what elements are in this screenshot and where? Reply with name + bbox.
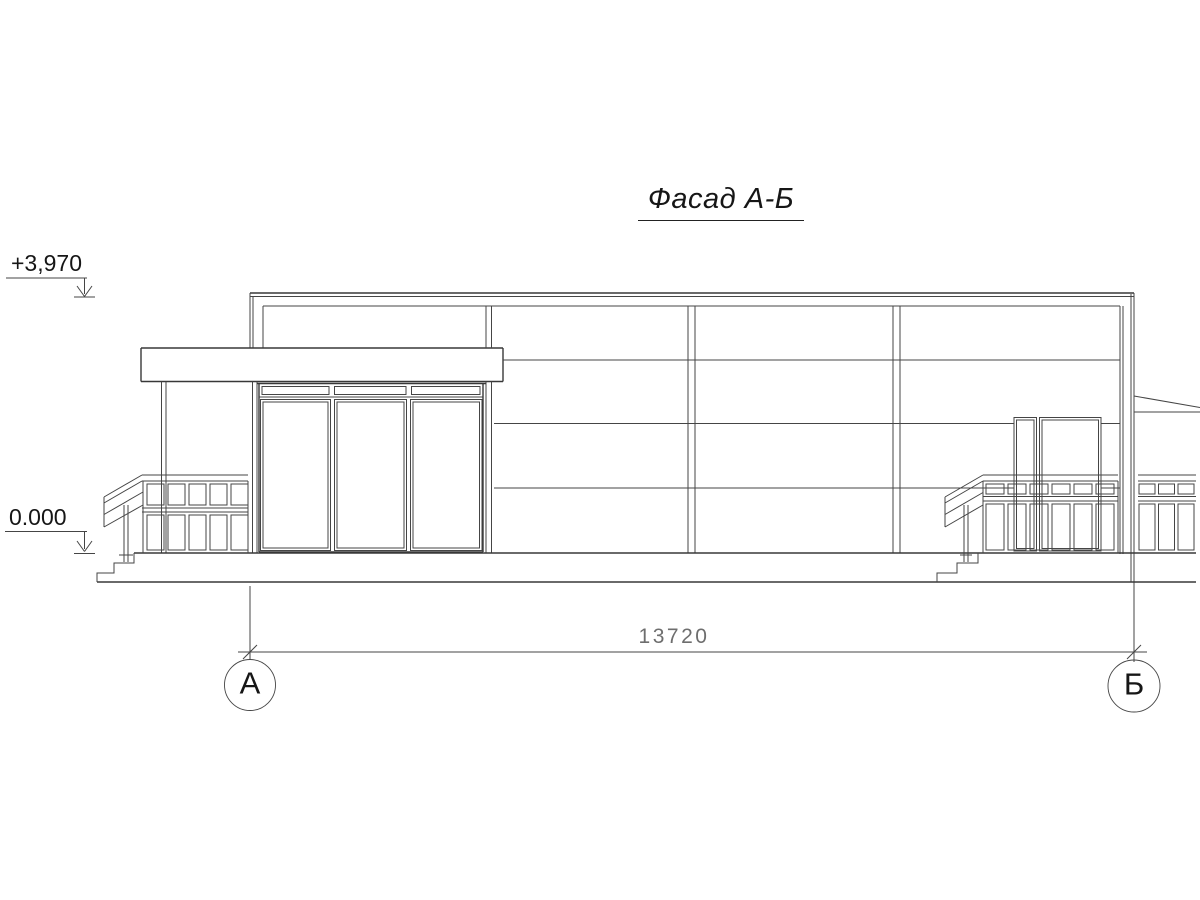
facade-cladding-lines (494, 360, 1120, 488)
elevation-value-top: +3,970 (11, 250, 82, 277)
dimension-value: 13720 (612, 625, 736, 649)
left-railing (104, 475, 248, 562)
elevation-marker-top-arrow (6, 278, 95, 297)
facade-linework (0, 0, 1200, 900)
columns (688, 306, 900, 553)
parapet (250, 293, 1134, 348)
right-steps (937, 553, 978, 582)
storefront-entrance (257, 384, 486, 553)
elevation-marker-zero-arrow (5, 532, 95, 554)
platform-and-steps (97, 553, 1196, 582)
axis-label-b: Б (1124, 667, 1144, 703)
axis-markers (225, 660, 1161, 713)
axis-label-a: А (240, 666, 261, 702)
drawing-sheet: Фасад А-Б +3,970 0.000 13720 А Б (0, 0, 1200, 900)
right-railing (945, 475, 1196, 562)
left-railing-panes (147, 484, 248, 550)
posts (162, 306, 492, 553)
elevation-value-zero: 0.000 (9, 504, 67, 531)
right-railing-panes (986, 484, 1194, 550)
drawing-title: Фасад А-Б (638, 183, 804, 221)
canopy (141, 348, 503, 382)
right-corner (1120, 293, 1134, 662)
side-canopy-wedge (1134, 396, 1200, 412)
